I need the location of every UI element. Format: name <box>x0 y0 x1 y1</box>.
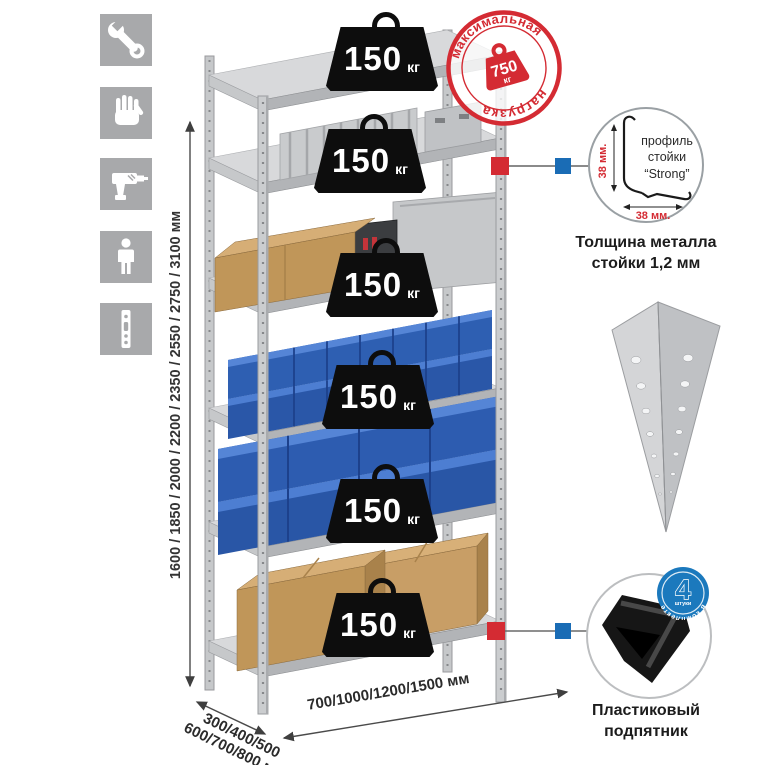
blue-marker-square <box>555 158 571 174</box>
red-marker-square <box>491 157 509 175</box>
blue-marker-square <box>555 623 571 639</box>
quantity-badge: 4 штуки в комплекте <box>656 566 710 620</box>
weight-body: 150 кг <box>322 365 434 429</box>
foot-caption: Пластиковый подпятник <box>556 701 736 743</box>
weight-body: 150 кг <box>326 479 438 543</box>
red-marker-square <box>487 622 505 640</box>
shelf6-weight-badge: 150 кг <box>322 578 434 662</box>
profile-label-2: стойки <box>648 150 686 164</box>
weight-body: 150 кг <box>314 129 426 193</box>
shelf2-weight-badge: 150 кг <box>314 114 426 198</box>
weight-unit: кг <box>403 397 416 413</box>
weight-value: 150 <box>332 142 390 180</box>
shelf3-weight-badge: 150 кг <box>326 238 438 322</box>
shelf5-weight-badge: 150 кг <box>326 464 438 548</box>
profile-callout-connector <box>491 157 600 175</box>
profile-caption: Толщина металла стойки 1,2 мм <box>556 233 736 275</box>
profile-vertical-dim: 38 мм. <box>597 144 609 179</box>
weight-value: 150 <box>340 606 398 644</box>
corner-post-image <box>612 302 720 532</box>
profile-label-3: “Strong” <box>644 167 689 181</box>
weight-value: 150 <box>344 266 402 304</box>
weight-body: 150 кг <box>326 253 438 317</box>
profile-caption-line1: Толщина металла <box>556 233 736 254</box>
shelf4-weight-badge: 150 кг <box>322 350 434 434</box>
profile-horizontal-dim: 38 мм. <box>636 210 671 222</box>
weight-body: 150 кг <box>326 27 438 91</box>
weight-unit: кг <box>407 511 420 527</box>
weight-unit: кг <box>407 59 420 75</box>
weight-unit: кг <box>407 285 420 301</box>
weight-unit: кг <box>403 625 416 641</box>
foot-caption-line2: подпятник <box>556 722 736 743</box>
weight-unit: кг <box>395 161 408 177</box>
foot-caption-line1: Пластиковый <box>556 701 736 722</box>
profile-caption-line2: стойки 1,2 мм <box>556 254 736 275</box>
height-dimension-label: 1600 / 1850 / 2000 / 2200 / 2350 / 2550 … <box>168 211 184 579</box>
profile-label-1: профиль <box>641 134 693 148</box>
foot-callout-connector <box>487 622 600 640</box>
shelf1-weight-badge: 150 кг <box>326 12 438 96</box>
badge-sub-text: штуки <box>675 601 692 607</box>
weight-body: 150 кг <box>322 593 434 657</box>
weight-value: 150 <box>344 40 402 78</box>
weight-value: 150 <box>344 492 402 530</box>
profile-detail-circle: 38 мм. 38 мм. профиль стойки “Strong” <box>585 104 707 226</box>
infographic-canvas: 150 кг 150 кг 150 кг 150 кг 150 кг <box>0 0 765 765</box>
weight-value: 150 <box>340 378 398 416</box>
